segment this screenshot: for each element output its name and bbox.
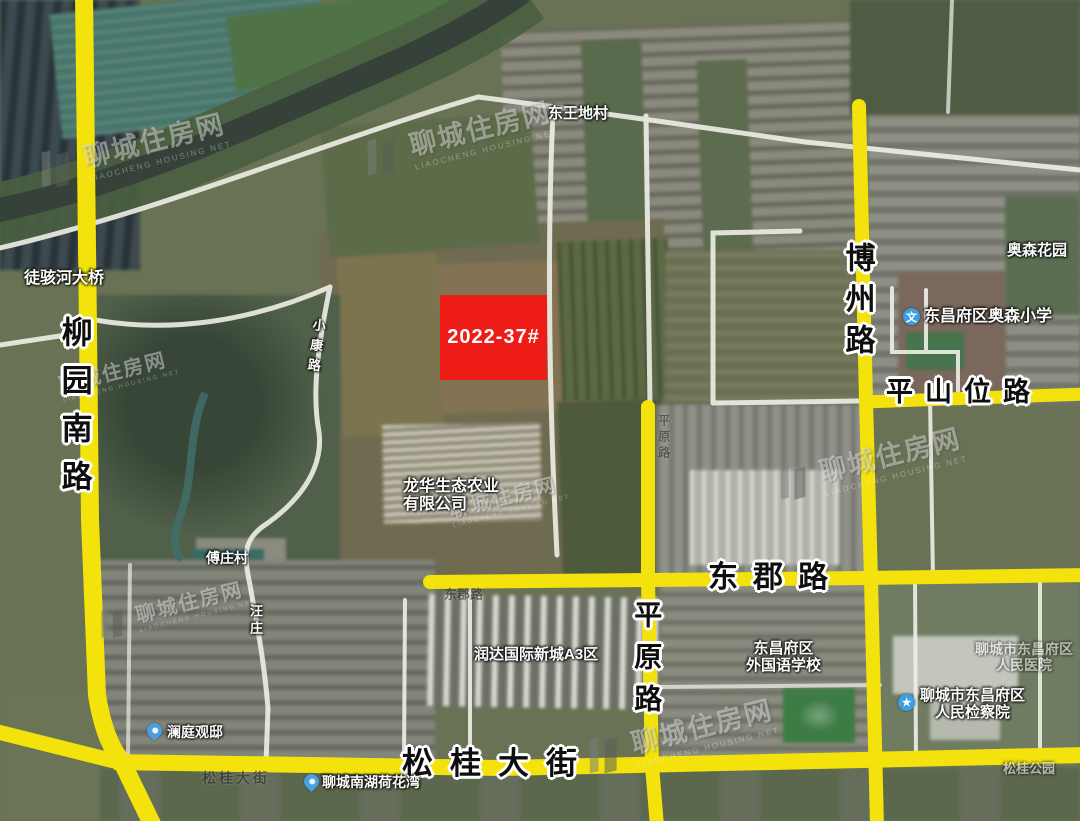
place-label-tuhai-bridge: 徒骇河大桥	[24, 270, 104, 288]
road-liuyuan-south	[84, 0, 154, 821]
place-label-line: 东昌府区	[746, 640, 821, 657]
road-label-pingshanwei: 平山位路	[886, 377, 1042, 408]
place-label-lanting-mansion: 澜庭观邸	[167, 724, 223, 740]
place-label-songgui-faint: 松桂大街	[202, 770, 270, 786]
road-network-overlay	[0, 0, 1080, 821]
place-label-songgui-park: 松桂公园	[1003, 762, 1055, 777]
parcel-label: 2022-37#	[447, 326, 540, 349]
road-songgui	[114, 755, 1080, 768]
place-label-dongjun-faint: 东郡路	[444, 588, 483, 603]
school-icon: 文	[903, 308, 920, 325]
procuratorate-icon: ★	[898, 694, 915, 711]
place-label-longhua-agriculture: 龙华生态农业 有限公司	[403, 478, 499, 515]
procuratorate-icon-glyph: ★	[902, 696, 912, 709]
school-icon-glyph: 文	[906, 309, 917, 325]
place-label-line: 聊城市东昌府区	[920, 687, 1025, 704]
road-label-dongjun: 东郡路	[708, 561, 843, 596]
place-label-runda-a3: 润达国际新城A3区	[474, 646, 598, 663]
road-label-bozhou: 博州路	[839, 242, 874, 365]
road-label-songgui: 松桂大街	[402, 746, 594, 782]
road-label-pingyuan: 平原路	[630, 600, 662, 726]
place-label-line: 有限公司	[403, 496, 499, 514]
place-label-wangzhuang: 汪庄	[247, 604, 262, 638]
place-label-pingyuan-faint: 平原路	[656, 414, 670, 462]
place-label-nanhu-lotus-bay: 聊城南湖荷花湾	[322, 774, 420, 790]
place-label-dongwangdi-village: 东王地村	[548, 105, 608, 122]
place-label-aosen-primary-school: 东昌府区奥森小学	[924, 308, 1052, 326]
place-label-fuzhuang-village: 傅庄村	[206, 550, 248, 566]
place-label-line: 龙华生态农业	[403, 478, 499, 496]
place-label-aosen-garden: 奥森花园	[1007, 242, 1067, 259]
place-label-procuratorate: 聊城市东昌府区 人民检察院	[920, 687, 1025, 722]
place-label-line: 外国语学校	[746, 657, 821, 674]
land-parcel-2022-37: 2022-37#	[440, 295, 547, 380]
satellite-map[interactable]: 聊城住房网LIAOCHENG HOUSING NET 聊城住房网LIAOCHEN…	[0, 0, 1080, 821]
place-label-line: 人民医院	[975, 657, 1073, 673]
road-label-liuyuan-south: 柳园南路	[56, 316, 92, 508]
place-label-foreign-language-school: 东昌府区 外国语学校	[746, 640, 821, 675]
place-label-hospital-faint: 聊城市东昌府区 人民医院	[975, 641, 1073, 673]
road-bozhou	[859, 106, 877, 821]
place-label-line: 人民检察院	[920, 704, 1025, 721]
place-label-line: 聊城市东昌府区	[975, 641, 1073, 657]
highlighted-roads	[0, 0, 1080, 821]
